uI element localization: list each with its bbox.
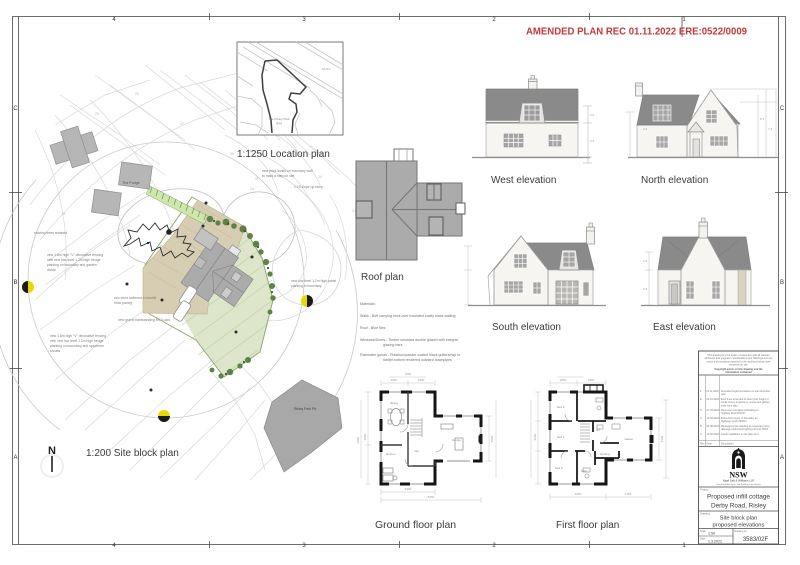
svg-text:plan: plan xyxy=(721,393,726,396)
svg-text:w/r: w/r xyxy=(596,428,600,432)
svg-text:01.11.2022: 01.11.2022 xyxy=(707,390,720,393)
svg-text:2.4: 2.4 xyxy=(643,287,648,291)
svg-text:Drawing no:: Drawing no: xyxy=(735,530,748,533)
svg-text:24: 24 xyxy=(318,175,322,179)
svg-text:new low level 1.2m high panel: new low level 1.2m high panel xyxy=(291,279,336,283)
svg-text:25: 25 xyxy=(135,92,139,96)
svg-text:3583/02F: 3583/02F xyxy=(743,537,769,543)
svg-text:drainage added amd lighting am: drainage added amd lighting amend 25/93 xyxy=(721,428,768,431)
svg-text:C: C xyxy=(700,417,702,420)
svg-text:Risley Park Pit: Risley Park Pit xyxy=(294,407,316,411)
svg-text:Rainwater goods - Plastisol po: Rainwater goods - Plastisol powder coate… xyxy=(360,353,460,357)
svg-text:27: 27 xyxy=(180,122,184,126)
svg-text:Roof plan: Roof plan xyxy=(361,272,404,283)
svg-text:Date:: Date: xyxy=(700,538,706,541)
svg-text:rain shed softened in beside: rain shed softened in beside xyxy=(114,296,157,300)
svg-text:1350: 1350 xyxy=(588,378,595,382)
svg-text:1:10 slope up ramp: 1:10 slope up ramp xyxy=(294,185,323,189)
svg-text:5650: 5650 xyxy=(575,492,582,496)
svg-text:new 1.8m high "V" decorative f: new 1.8m high "V" decorative fencing xyxy=(50,334,106,338)
svg-text:2.6: 2.6 xyxy=(643,259,648,263)
svg-text:2.6: 2.6 xyxy=(590,113,595,117)
svg-text:Derby Road, Risley: Derby Road, Risley xyxy=(711,503,767,510)
svg-text:Amended legal boundaries on si: Amended legal boundaries on site amended xyxy=(721,390,771,393)
svg-text:Roof - Blue tiles: Roof - Blue tiles xyxy=(360,326,386,330)
svg-text:bath: bath xyxy=(581,469,587,473)
svg-text:Description: Description xyxy=(721,443,734,446)
svg-text:Chartered Architects and Build: Chartered Architects and Building Consul… xyxy=(716,483,762,486)
svg-text:1900: 1900 xyxy=(418,378,425,382)
svg-text:hwf/pf bottom rendered outward: hwf/pf bottom rendered outward downpipes xyxy=(383,358,452,362)
svg-text:7.4: 7.4 xyxy=(768,127,773,131)
svg-text:Walls - Buff carrying brick ov: Walls - Buff carrying brick over insulat… xyxy=(360,314,455,318)
svg-text:information contained: information contained xyxy=(725,371,752,374)
svg-text:North elevation: North elevation xyxy=(641,175,708,186)
svg-text:4950: 4950 xyxy=(391,378,398,382)
svg-text:Scale:: Scale: xyxy=(700,530,707,533)
svg-text:bed 2: bed 2 xyxy=(557,405,565,409)
svg-text:21: 21 xyxy=(62,212,66,216)
svg-text:14.06.2022: 14.06.2022 xyxy=(707,433,720,436)
svg-text:1:1250 Location plan: 1:1250 Location plan xyxy=(237,149,330,160)
svg-text:new gravel hardstanding for 3: new gravel hardstanding for 3 cars xyxy=(118,318,170,322)
svg-text:2850: 2850 xyxy=(560,378,567,382)
svg-text:The Podge: The Podge xyxy=(122,181,140,185)
svg-text:bed 1: bed 1 xyxy=(557,435,565,439)
svg-text:1:50: 1:50 xyxy=(708,532,715,536)
svg-text:proposed elevations: proposed elevations xyxy=(713,523,765,529)
svg-text:B: B xyxy=(780,280,784,286)
svg-text:Garden additions to site plan: Garden additions to site plan amd xyxy=(721,433,759,436)
svg-text:4500: 4500 xyxy=(490,435,494,442)
svg-text:1a: 1a xyxy=(250,187,254,191)
svg-text:dining: dining xyxy=(390,401,398,405)
svg-text:Materials:: Materials: xyxy=(360,302,376,306)
svg-text:7050: 7050 xyxy=(405,372,412,376)
svg-text:Windows/Doors - Timber windows: Windows/Doors - Timber windows double gl… xyxy=(360,338,458,342)
svg-text:27.09.2022: 27.09.2022 xyxy=(707,409,720,412)
svg-text:31: 31 xyxy=(255,177,259,181)
svg-text:Nigel Salt & Williams LLP: Nigel Salt & Williams LLP xyxy=(723,479,755,483)
svg-text:14.09.2022: 14.09.2022 xyxy=(707,417,720,420)
svg-text:60.8m: 60.8m xyxy=(322,67,331,71)
svg-text:divide: divide xyxy=(47,268,56,272)
svg-text:1.3.2022: 1.3.2022 xyxy=(708,540,722,544)
svg-text:9200: 9200 xyxy=(363,433,367,440)
svg-text:with new low level 1.2m high h: with new low level 1.2m high hedge xyxy=(47,258,100,262)
svg-text:5.1: 5.1 xyxy=(760,117,765,121)
svg-text:9800: 9800 xyxy=(356,436,360,443)
svg-text:shrubs: shrubs xyxy=(50,349,60,353)
svg-text:D: D xyxy=(700,409,702,412)
svg-text:23: 23 xyxy=(95,112,99,116)
svg-text:C: C xyxy=(780,106,785,112)
svg-text:planting in boundary: planting in boundary xyxy=(291,284,322,288)
svg-text:A: A xyxy=(780,455,784,461)
svg-text:Rev: Rev xyxy=(700,443,705,446)
svg-text:Project:: Project: xyxy=(700,488,709,492)
svg-text:landing: landing xyxy=(600,452,610,456)
svg-text:Date: Date xyxy=(707,443,713,446)
svg-text:4750: 4750 xyxy=(625,492,632,496)
svg-text:proceeds on site: proceeds on site xyxy=(729,364,748,367)
svg-text:9200: 9200 xyxy=(533,433,537,440)
svg-text:new brick levels on boundary w: new brick levels on boundary wall xyxy=(262,169,313,173)
svg-text:Proposed infill cottage: Proposed infill cottage xyxy=(707,494,770,501)
svg-text:bed 3: bed 3 xyxy=(555,466,563,470)
svg-text:C: C xyxy=(13,106,18,112)
svg-text:new 1.8m high "V" decorative f: new 1.8m high "V" decorative fencing xyxy=(47,253,103,257)
svg-text:master: master xyxy=(624,437,633,441)
svg-text:2.4: 2.4 xyxy=(590,139,595,143)
svg-text:Site block plan: Site block plan xyxy=(720,516,758,522)
svg-text:glazing bars: glazing bars xyxy=(383,343,403,347)
svg-text:hall: hall xyxy=(414,449,419,453)
svg-text:with new low level 1.2m high h: with new low level 1.2m high hedge xyxy=(50,339,103,343)
svg-text:highways amdt 250612: highways amdt 250612 xyxy=(721,420,747,423)
svg-text:A: A xyxy=(13,455,17,461)
svg-text:B: B xyxy=(13,280,17,286)
svg-text:(PH): (PH) xyxy=(276,122,282,126)
svg-text:03.08.2022: 03.08.2022 xyxy=(707,425,720,428)
svg-text:Drawing:: Drawing: xyxy=(700,512,711,516)
svg-text:The Risley Park: The Risley Park xyxy=(268,117,290,121)
svg-text:store from plan: store from plan xyxy=(721,404,738,407)
svg-text:1:200 Site block plan: 1:200 Site block plan xyxy=(86,448,179,459)
svg-text:4100: 4100 xyxy=(660,435,664,442)
svg-text:Ground floor plan: Ground floor plan xyxy=(375,519,456,531)
svg-text:03.10.2022: 03.10.2022 xyxy=(707,398,720,401)
svg-text:to mark a step on site: to mark a step on site xyxy=(262,174,295,178)
svg-text:8250: 8250 xyxy=(428,495,435,499)
svg-text:South elevation: South elevation xyxy=(492,322,561,333)
svg-text:5400: 5400 xyxy=(405,487,412,491)
svg-text:highway amdt 250737: highway amdt 250737 xyxy=(721,412,746,415)
svg-text:planting on boundary and garde: planting on boundary and garden xyxy=(47,263,97,267)
svg-text:4.4: 4.4 xyxy=(643,127,648,131)
svg-text:lounge: lounge xyxy=(452,438,461,442)
svg-text:29: 29 xyxy=(230,152,234,156)
svg-text:existing trees retained: existing trees retained xyxy=(34,231,67,235)
svg-text:N: N xyxy=(48,445,56,457)
svg-text:AMENDED PLAN REC 01.11.2022 ER: AMENDED PLAN REC 01.11.2022 ERE:0522/000… xyxy=(526,26,747,38)
svg-text:brick paving: brick paving xyxy=(114,301,132,305)
svg-text:planting on boundary and speci: planting on boundary and specimen xyxy=(50,344,104,348)
svg-text:West elevation: West elevation xyxy=(491,175,556,186)
svg-text:kitchen: kitchen xyxy=(386,452,396,456)
svg-text:First floor plan: First floor plan xyxy=(556,520,619,531)
svg-text:East elevation: East elevation xyxy=(653,322,716,333)
